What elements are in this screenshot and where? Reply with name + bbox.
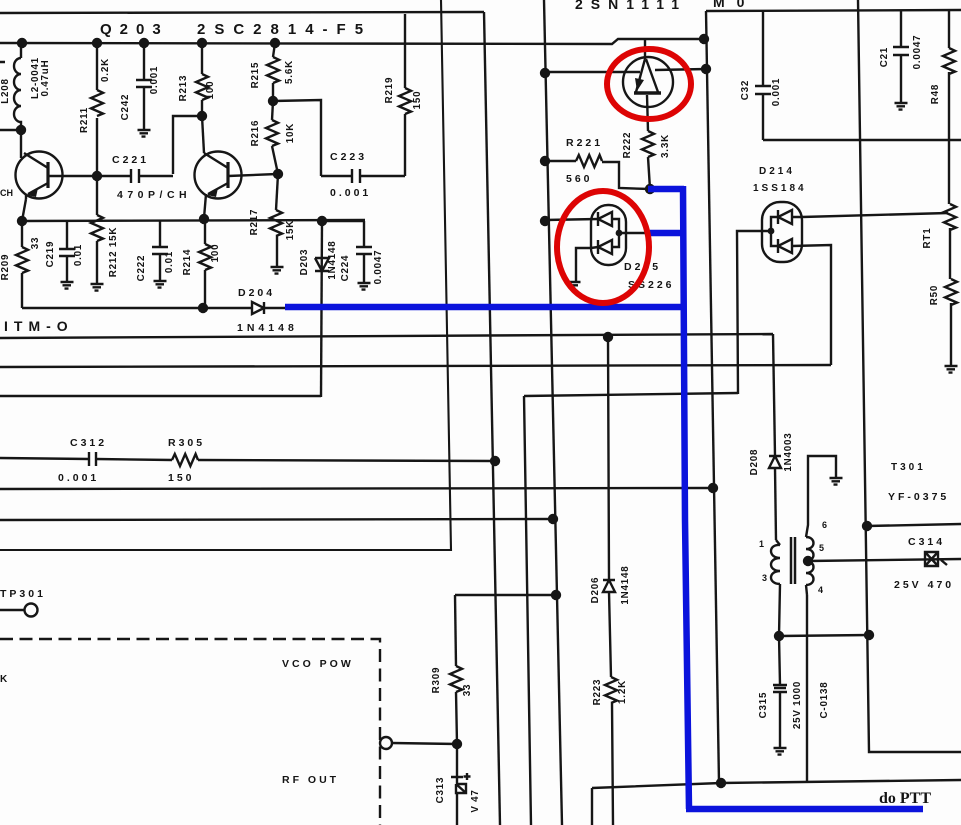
svg-text:R214: R214 [182, 249, 193, 276]
svg-text:25V 1000: 25V 1000 [792, 681, 803, 729]
svg-text:Q203: Q203 [100, 21, 169, 38]
svg-text:R213: R213 [178, 75, 189, 102]
svg-text:0.01: 0.01 [164, 251, 175, 273]
svg-text:1N4003: 1N4003 [783, 432, 794, 471]
svg-text:C224: C224 [340, 255, 351, 282]
svg-text:R219: R219 [384, 77, 395, 104]
svg-text:100: 100 [205, 81, 216, 100]
svg-text:150: 150 [168, 472, 195, 484]
svg-text:C315: C315 [758, 692, 769, 719]
svg-text:10K: 10K [285, 123, 296, 143]
svg-text:0.01: 0.01 [73, 244, 84, 266]
svg-text:TP301: TP301 [0, 588, 46, 600]
svg-text:C313: C313 [435, 777, 446, 804]
svg-text:C21: C21 [879, 47, 890, 67]
svg-text:C242: C242 [120, 94, 131, 121]
svg-text:33: 33 [30, 237, 41, 250]
svg-text:C223: C223 [330, 151, 367, 163]
svg-text:RT1: RT1 [922, 228, 933, 249]
svg-text:D206: D206 [590, 577, 601, 604]
svg-text:560: 560 [566, 173, 593, 185]
svg-text:R212 15K: R212 15K [108, 227, 119, 278]
svg-text:R209: R209 [0, 254, 11, 281]
svg-text:0.001: 0.001 [58, 472, 99, 484]
svg-text:5.6K: 5.6K [284, 60, 295, 84]
svg-text:5: 5 [819, 543, 824, 553]
svg-text:470P/CH: 470P/CH [117, 189, 191, 201]
svg-text:D203: D203 [299, 249, 310, 276]
svg-text:C221: C221 [112, 154, 149, 166]
svg-text:0.47uH: 0.47uH [40, 60, 51, 97]
svg-text:0.001: 0.001 [771, 78, 782, 107]
svg-text:CH: CH [0, 188, 13, 198]
svg-text:ITM-O: ITM-O [4, 318, 74, 334]
svg-text:1.2K: 1.2K [617, 680, 628, 704]
svg-text:1N4148: 1N4148 [620, 565, 631, 604]
svg-text:R48: R48 [930, 84, 941, 104]
svg-text:do PTT: do PTT [879, 790, 931, 807]
svg-text:C314: C314 [908, 536, 945, 548]
svg-text:R223: R223 [592, 679, 603, 706]
svg-text:R309: R309 [431, 667, 442, 694]
svg-text:100: 100 [210, 244, 221, 263]
svg-text:33: 33 [462, 684, 473, 697]
svg-text:YF-0375: YF-0375 [888, 491, 949, 503]
svg-text:3: 3 [762, 573, 767, 583]
svg-text:1: 1 [759, 539, 764, 549]
svg-text:C32: C32 [740, 80, 751, 100]
svg-text:R222: R222 [622, 132, 633, 159]
svg-text:4: 4 [818, 585, 823, 595]
svg-text:1N4148: 1N4148 [237, 322, 298, 334]
svg-text:D208: D208 [749, 449, 760, 476]
svg-text:2SN1111: 2SN1111 [575, 0, 687, 12]
svg-text:25V 470: 25V 470 [894, 579, 954, 591]
svg-text:R216: R216 [250, 120, 261, 147]
svg-text:R221: R221 [566, 137, 603, 149]
svg-text:R305: R305 [168, 437, 205, 449]
svg-text:1SS184: 1SS184 [753, 183, 807, 194]
svg-text:VCO POW: VCO POW [282, 658, 354, 670]
svg-text:C219: C219 [45, 241, 56, 268]
svg-text:3.3K: 3.3K [660, 134, 671, 158]
svg-text:150: 150 [412, 91, 423, 110]
svg-text:R50: R50 [929, 285, 940, 305]
svg-text:C312: C312 [70, 437, 107, 449]
svg-text:0.001: 0.001 [330, 187, 371, 199]
svg-text:K: K [0, 674, 8, 685]
svg-text:15K: 15K [285, 220, 296, 240]
svg-text:V 47: V 47 [470, 789, 481, 812]
svg-text:L208: L208 [0, 78, 11, 104]
svg-text:M0: M0 [713, 0, 756, 10]
svg-text:D214: D214 [759, 166, 795, 177]
svg-text:6: 6 [822, 520, 827, 530]
svg-text:0.0047: 0.0047 [373, 250, 384, 285]
svg-text:R217: R217 [249, 209, 260, 236]
svg-text:T301: T301 [891, 462, 926, 473]
svg-text:R211: R211 [79, 107, 90, 133]
svg-text:0.001: 0.001 [149, 66, 160, 95]
svg-text:C-0138: C-0138 [819, 682, 830, 719]
svg-text:2SC2814-F5: 2SC2814-F5 [197, 21, 372, 38]
svg-text:RF OUT: RF OUT [282, 774, 339, 786]
svg-text:0.0047: 0.0047 [912, 35, 923, 70]
svg-text:1N4148: 1N4148 [327, 240, 338, 279]
svg-text:0.2K: 0.2K [100, 58, 111, 82]
svg-text:R215: R215 [250, 62, 261, 89]
svg-text:C222: C222 [136, 255, 147, 282]
svg-text:D204: D204 [238, 287, 275, 299]
